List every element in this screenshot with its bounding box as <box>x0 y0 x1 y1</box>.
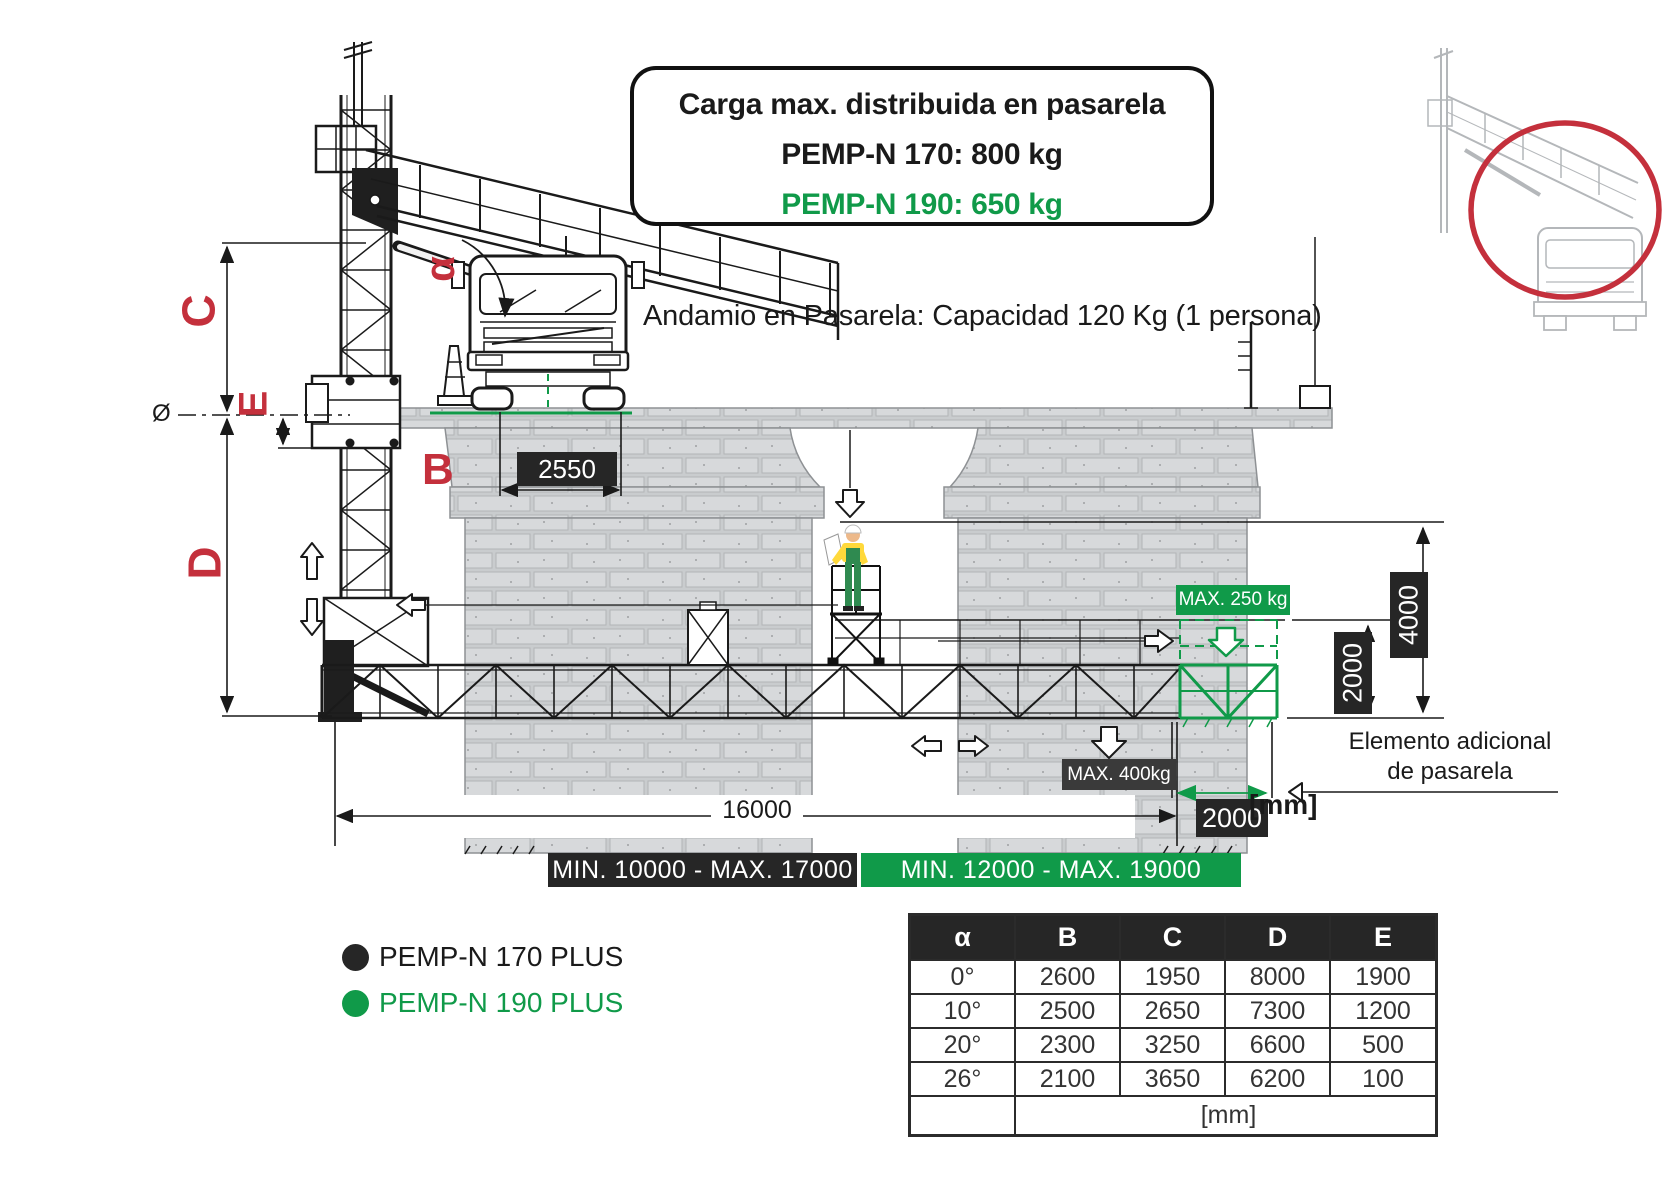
table-row: 26° 2100 3650 6200 100 <box>911 1063 1435 1097</box>
angle-dimension-table: α B C D E 0° 2600 1950 8000 1900 10° 250… <box>908 913 1438 1137</box>
legend-item-pemp170: PEMP-N 170 PLUS <box>342 941 623 973</box>
shuttle-left-arrow <box>912 736 941 756</box>
legend-label-pemp170: PEMP-N 170 PLUS <box>379 941 623 973</box>
boom-pivot <box>370 195 380 205</box>
right-parapet-block <box>1300 386 1330 408</box>
right-haunch <box>950 428 1258 487</box>
up-arrow <box>301 543 323 579</box>
elemento-adicional-note: Elemento adicional de pasarela <box>1316 727 1584 787</box>
truck-mirror-right <box>632 262 644 288</box>
right-pier-cap <box>944 487 1260 518</box>
truck-front <box>452 236 644 409</box>
table-header-alpha: α <box>911 916 1016 961</box>
worker-drop-arrow <box>836 490 864 517</box>
worker-overalls <box>846 548 860 564</box>
table-body: 0° 2600 1950 8000 1900 10° 2500 2650 730… <box>911 961 1435 1097</box>
badge-max-400kg: MAX. 400kg <box>1062 759 1176 790</box>
range-bar-pemp170: MIN. 10000 - MAX. 17000 <box>548 853 857 887</box>
badge-max-250kg: MAX. 250 kg <box>1176 585 1290 615</box>
left-haunch <box>445 428 820 487</box>
worker <box>824 525 868 611</box>
table-row: 10° 2500 2650 7300 1200 <box>911 995 1435 1029</box>
mast-break-marks <box>344 42 372 58</box>
axis-diameter-symbol: Ø <box>152 400 171 428</box>
max-load-info-box: Carga max. distribuida en pasarela PEMP-… <box>630 66 1214 226</box>
legend-item-pemp190: PEMP-N 190 PLUS <box>342 987 623 1019</box>
legend-dot-black <box>342 944 369 971</box>
truck-wheel-right <box>584 388 624 409</box>
table-row: 20° 2300 3250 6600 500 <box>911 1029 1435 1063</box>
inset-diagram <box>1428 48 1659 330</box>
dim-label-b: B <box>422 448 454 492</box>
table-footer-units: [mm] <box>1016 1097 1441 1134</box>
dim-label-alpha: α <box>419 256 461 282</box>
badge-4000: 4000 <box>1390 572 1428 658</box>
bridge-deck <box>368 408 1332 428</box>
range-bar-pemp190: MIN. 12000 - MAX. 19000 <box>861 853 1241 887</box>
table-header-row: α B C D E <box>911 916 1435 961</box>
left-pier-cap <box>450 487 824 518</box>
table-header-c: C <box>1121 916 1226 961</box>
worker-leg-right <box>854 562 861 607</box>
andamio-note: Andamio en Pasarela: Capacidad 120 Kg (1… <box>643 300 1322 333</box>
table-header-e: E <box>1331 916 1435 961</box>
dim-16000-label: 16000 <box>711 797 803 823</box>
traffic-cone-base <box>438 396 472 405</box>
units-note: [mm] <box>1249 789 1317 821</box>
table-footer-row: [mm] <box>911 1097 1435 1134</box>
traffic-cone <box>444 346 464 396</box>
carriage-side-platform <box>306 384 328 422</box>
legend-label-pemp190: PEMP-N 190 PLUS <box>379 987 623 1019</box>
down-arrow <box>301 599 323 635</box>
truck-wheel-left <box>472 388 512 409</box>
under-bridge-unit-diagram: Carga max. distribuida en pasarela PEMP-… <box>0 0 1675 1188</box>
worker-helmet <box>845 525 861 533</box>
table-header-d: D <box>1226 916 1331 961</box>
mast-tower <box>306 42 428 722</box>
worker-leg-left <box>845 562 852 607</box>
dim-label-d: D <box>182 546 228 579</box>
table-footer-empty <box>911 1097 1016 1134</box>
info-box-title: Carga max. distribuida en pasarela <box>634 80 1210 130</box>
table-row: 0° 2600 1950 8000 1900 <box>911 961 1435 995</box>
table-header-b: B <box>1016 916 1121 961</box>
badge-2000-vertical: 2000 <box>1334 632 1372 714</box>
info-box-pemp190: PEMP-N 190: 650 kg <box>634 180 1210 230</box>
right-signal-rungs <box>1238 342 1258 408</box>
badge-2550: 2550 <box>517 452 617 486</box>
info-box-pemp170: PEMP-N 170: 800 kg <box>634 130 1210 180</box>
legend-dot-green <box>342 990 369 1017</box>
dim-label-c: C <box>176 294 222 327</box>
dim-label-e: E <box>233 391 273 418</box>
